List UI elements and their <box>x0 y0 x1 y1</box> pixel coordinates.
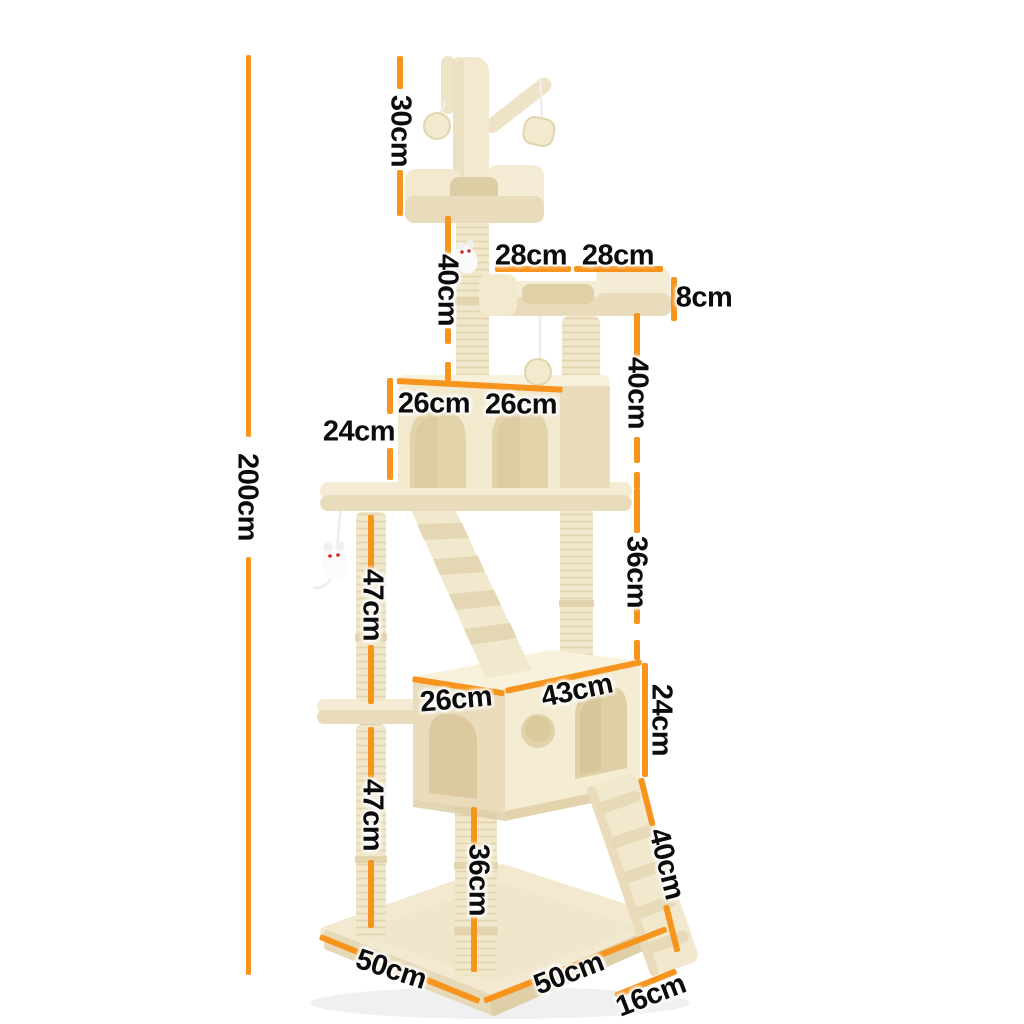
pompom-middle <box>525 316 551 385</box>
dim-label-upper-post: 40cm <box>431 254 464 326</box>
dim-line-perch-post <box>634 472 640 489</box>
dim-label-upper-condo-height: 24cm <box>323 416 395 449</box>
dim-line-perch-post <box>634 437 640 463</box>
ramp <box>408 503 532 678</box>
dim-line-top-section <box>397 56 403 89</box>
dim-label-top-perch-right: 28cm <box>582 240 654 273</box>
dim-label-left-post-lower: 47cm <box>356 779 389 851</box>
dim-line-total-height <box>246 557 251 975</box>
dim-line-upper-condo-height <box>387 448 393 480</box>
dim-line-perch-post <box>634 313 640 357</box>
dim-label-lower-condo-depth: 26cm <box>419 680 494 719</box>
dim-label-total-height: 200cm <box>231 453 264 541</box>
dim-line-upper-post <box>445 328 451 344</box>
dim-line-bottom-post <box>471 807 477 848</box>
dim-label-bottom-post: 36cm <box>462 844 495 916</box>
dim-label-perch-thickness: 8cm <box>676 282 733 315</box>
dim-line-total-height <box>246 55 251 437</box>
dim-line-mid-post <box>634 488 640 533</box>
right-post <box>559 508 594 665</box>
dim-line-top-section <box>397 170 403 216</box>
dim-label-lower-condo-height: 24cm <box>645 684 678 756</box>
dim-label-top-section: 30cm <box>384 95 417 167</box>
second-perch <box>479 267 671 316</box>
cat-tree-illustration <box>0 0 1024 1024</box>
top-assembly <box>405 56 556 223</box>
dim-line-upper-condo-height <box>387 378 393 414</box>
dim-line-bottom-post <box>471 915 477 972</box>
dim-label-condo-top-right: 26cm <box>485 389 557 422</box>
dim-label-perch-post: 40cm <box>621 357 654 429</box>
dim-line-left-post-lower <box>368 727 374 778</box>
dim-line-upper-post <box>445 216 451 254</box>
dim-line-left-post-upper <box>368 645 374 704</box>
mouse-toy-left <box>313 508 350 588</box>
dim-label-mid-post: 36cm <box>620 536 653 608</box>
dim-line-left-post-lower <box>368 860 374 928</box>
dim-line-upper-post <box>445 362 451 381</box>
dim-label-top-perch-left: 28cm <box>495 240 567 273</box>
dimension-diagram: 200cm 30cm 40cm 28cm 28cm 8cm 40cm 26cm … <box>0 0 1024 1024</box>
dim-label-left-post-upper: 47cm <box>356 569 389 641</box>
dim-line-mid-post <box>634 640 640 660</box>
dim-label-condo-top-left: 26cm <box>398 388 470 421</box>
dim-line-left-post-upper <box>368 515 374 570</box>
dim-line-mid-post <box>634 608 640 624</box>
